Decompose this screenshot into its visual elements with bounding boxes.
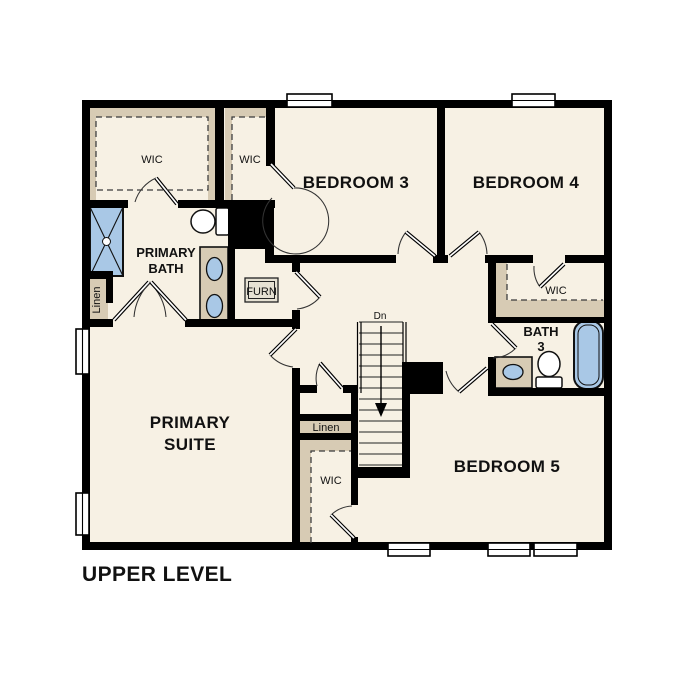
primary-bath-label-1: PRIMARY (136, 245, 196, 260)
bath3-label-1: BATH (523, 324, 558, 339)
linen-bath-label: Linen (91, 287, 103, 314)
bath3-label-2: 3 (537, 339, 544, 354)
vanity-icon (200, 247, 228, 322)
bedroom5-label: BEDROOM 5 (454, 457, 561, 476)
wic-bed4-label: WIC (545, 285, 566, 297)
floor-plan: WIC WIC BEDROOM 3 BEDROOM 4 PRIMARY BATH… (0, 0, 687, 687)
bedroom3-label: BEDROOM 3 (303, 173, 410, 192)
bedroom4-label: BEDROOM 4 (473, 173, 580, 192)
window-icon (76, 329, 89, 374)
window-icon (76, 493, 89, 535)
wic-bed3-label: WIC (239, 154, 260, 166)
primary-bath-label-2: BATH (148, 261, 183, 276)
toilet-icon (536, 352, 562, 389)
window-icon (512, 94, 555, 107)
page-title: UPPER LEVEL (82, 563, 232, 586)
window-icon (488, 543, 530, 556)
window-icon (388, 543, 430, 556)
window-icon (534, 543, 577, 556)
wic-bed5-label: WIC (320, 475, 341, 487)
shower-icon (90, 207, 123, 276)
bathtub-icon (574, 321, 603, 389)
stairs-down-label: Dn (374, 311, 387, 322)
primary-suite-label-2: SUITE (164, 435, 216, 454)
primary-suite-label-1: PRIMARY (150, 413, 231, 432)
chase-block (228, 205, 274, 249)
toilet-icon (191, 208, 229, 235)
chase-block (402, 362, 443, 394)
wic-primary-label: WIC (141, 154, 162, 166)
sink-icon (495, 357, 532, 388)
linen-hall-label: Linen (313, 422, 340, 434)
furnace-label: FURN (246, 286, 277, 298)
window-icon (287, 94, 332, 107)
